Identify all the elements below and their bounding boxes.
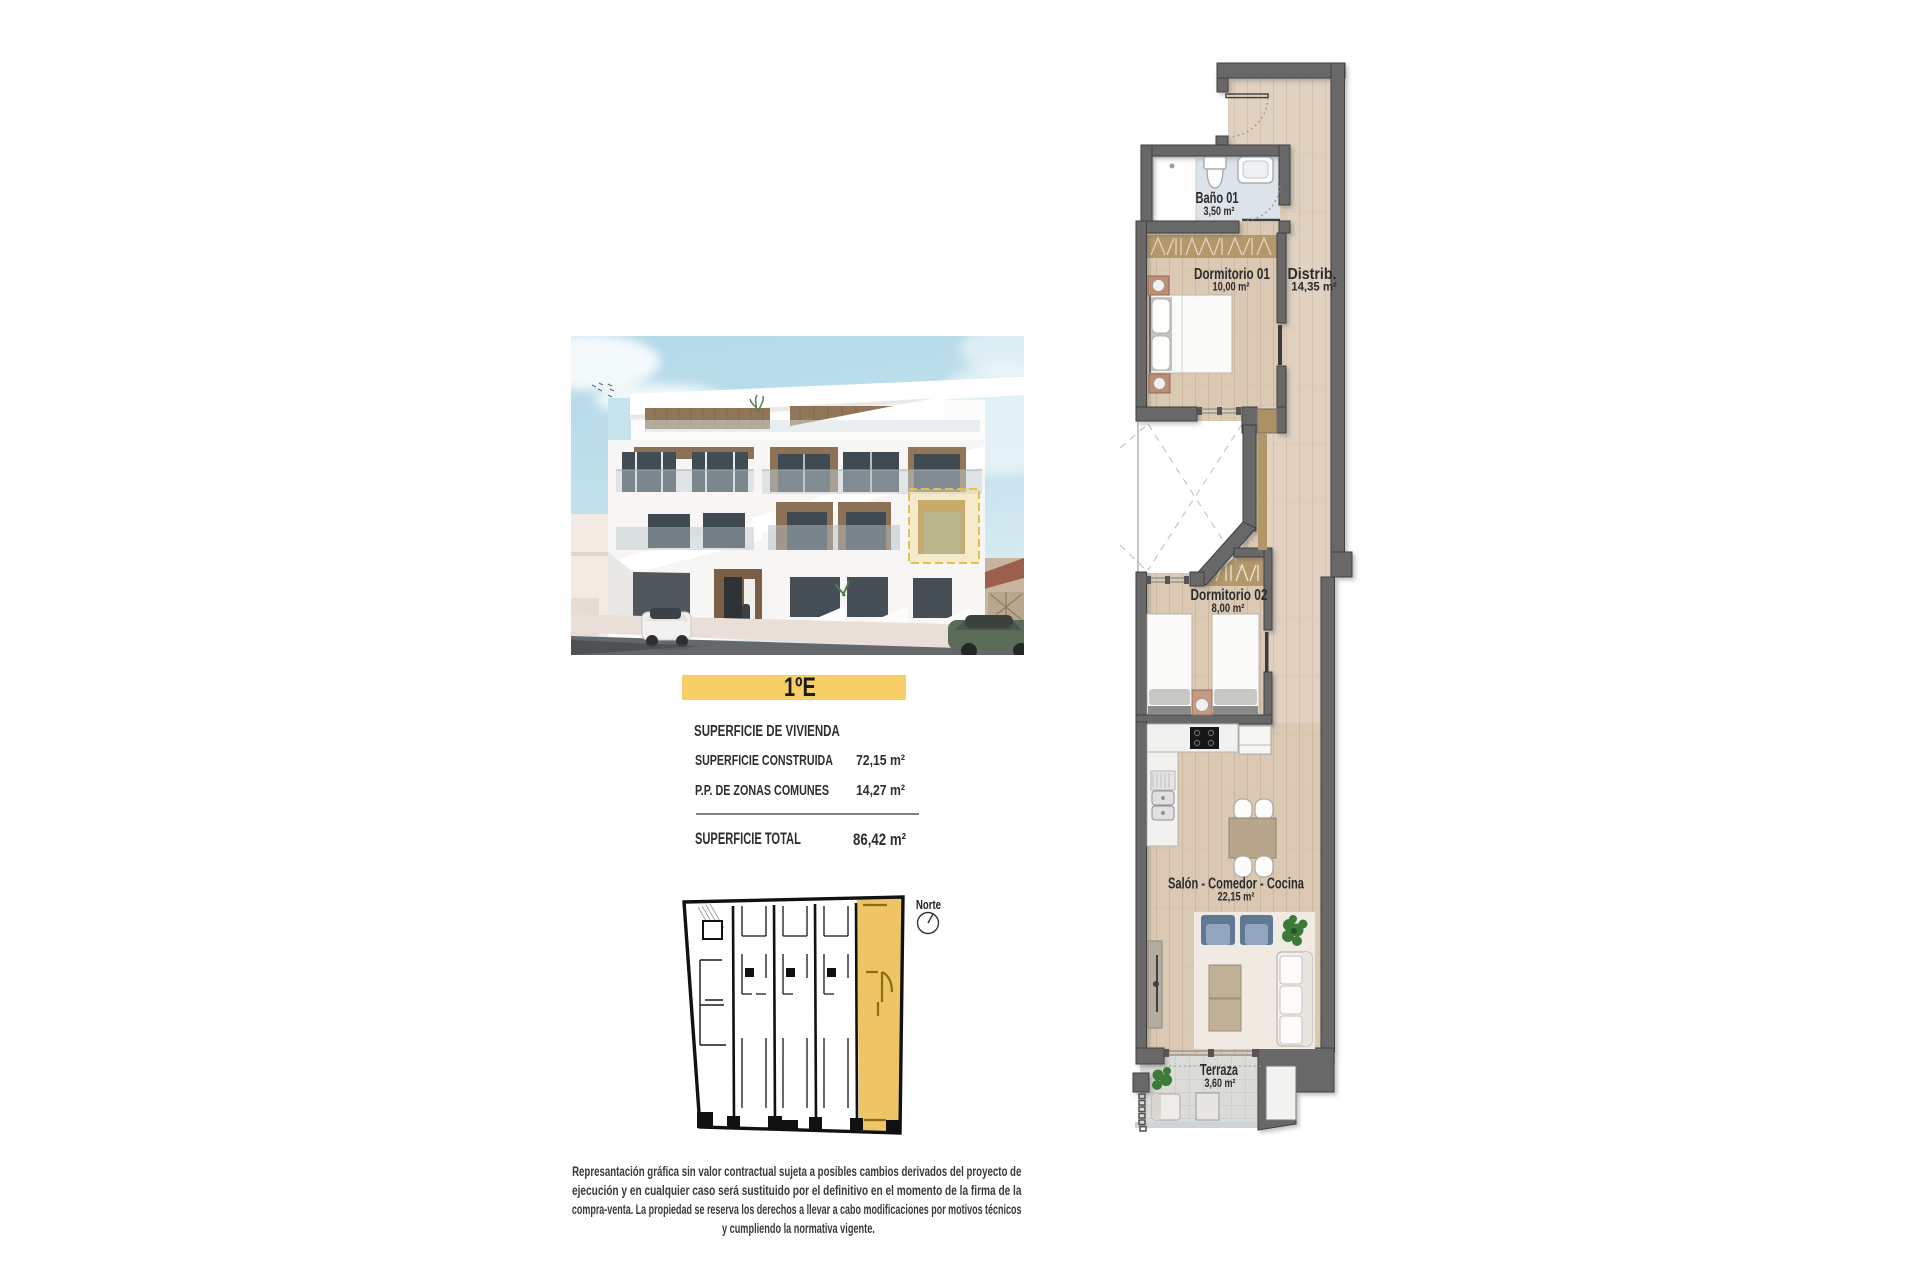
svg-text:y cumpliendo la normativa vige: y cumpliendo la normativa vigente. [722, 1220, 875, 1237]
svg-text:14,27 m²: 14,27 m² [856, 782, 905, 798]
svg-text:P.P. DE ZONAS COMUNES: P.P. DE ZONAS COMUNES [695, 781, 829, 798]
svg-text:Norte: Norte [916, 899, 941, 912]
svg-text:SUPERFICIE CONSTRUIDA: SUPERFICIE CONSTRUIDA [695, 751, 833, 768]
svg-text:3,60 m²: 3,60 m² [1204, 1077, 1235, 1091]
svg-text:14,35 m²: 14,35 m² [1291, 280, 1337, 293]
svg-text:72,15 m²: 72,15 m² [856, 752, 905, 768]
svg-text:Dormitorio 02: Dormitorio 02 [1191, 587, 1268, 604]
svg-text:8,00 m²: 8,00 m² [1212, 602, 1245, 615]
svg-text:3,50 m²: 3,50 m² [1204, 205, 1235, 219]
svg-text:1ºE: 1ºE [784, 672, 816, 703]
svg-text:compra-venta. La propiedad se: compra-venta. La propiedad se reserva lo… [572, 1202, 1022, 1217]
svg-text:Salón - Comedor - Cocina: Salón - Comedor - Cocina [1168, 875, 1304, 892]
svg-text:SUPERFICIE TOTAL: SUPERFICIE TOTAL [695, 829, 801, 848]
svg-text:22,15 m²: 22,15 m² [1217, 890, 1254, 903]
svg-text:SUPERFICIE DE VIVIENDA: SUPERFICIE DE VIVIENDA [694, 722, 840, 739]
svg-text:86,42 m²: 86,42 m² [853, 831, 906, 850]
svg-text:10,00 m²: 10,00 m² [1212, 280, 1249, 293]
svg-text:ejecución y en cualquier caso: ejecución y en cualquier caso será susti… [572, 1182, 1022, 1198]
svg-text:Represantación gráfica sin val: Represantación gráfica sin valor contrac… [572, 1163, 1021, 1179]
